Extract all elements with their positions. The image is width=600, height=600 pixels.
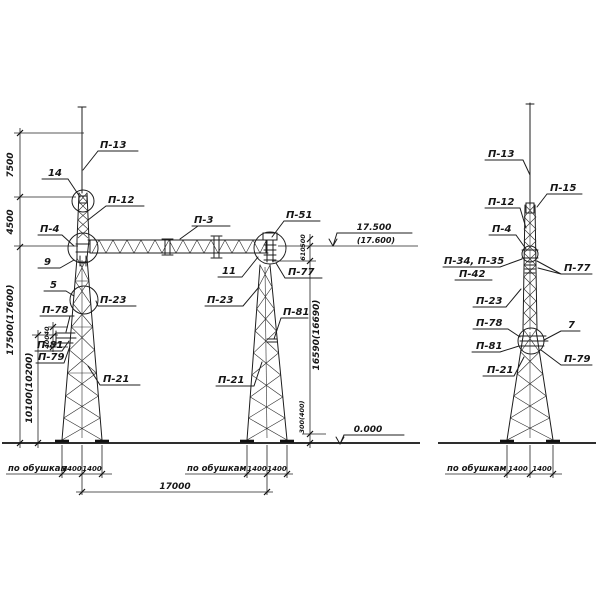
label-9-front: 9 [44,257,51,268]
dim-base-side-b: 1400 [532,465,552,473]
note-po-obushkam-side: по обушкам [447,463,507,474]
label-p21-right: П-21 [218,375,244,386]
label-p13-side: П-13 [488,149,514,160]
label-p77-front: П-77 [288,267,314,278]
label-p34-p35-side: П-34, П-35 [444,256,504,267]
label-p4-front: П-4 [40,224,60,235]
label-p78-front: П-78 [42,305,68,316]
dim-base1-a: 1400 [62,465,82,473]
elevation-17600-alt: (17.600) [357,236,395,245]
note-po-obushkam-1: по обушкам [8,463,68,474]
dim-40: 40 [43,326,51,336]
front-structure [55,107,294,441]
label-p23-left: П-23 [100,295,126,306]
label-p42-side: П-42 [459,269,485,280]
label-p13-front: П-13 [100,140,126,151]
label-p21-left: П-21 [103,374,129,385]
dim-400: 400 [43,335,51,349]
dim-500: 500 [299,234,307,248]
label-14-front: 14 [48,168,62,179]
label-p12-front: П-12 [108,195,134,206]
dim-16590: 16590(16690) [312,300,322,371]
side-texts: П-13 П-15 П-12 П-4 П-34, П-35 П-42 П-77 … [444,149,590,474]
front-leaders [35,151,322,386]
dim-17500: 17500(17600) [6,285,16,356]
dim-610: 610 [299,247,307,261]
label-p79-side: П-79 [564,354,590,365]
portal-tower-drawing: П-13 14 П-12 П-4 9 5 П-23 П-78 П-81 П-79… [0,0,600,600]
front-view: П-13 14 П-12 П-4 9 5 П-23 П-78 П-81 П-79… [2,107,420,495]
label-p77-side: П-77 [564,263,590,274]
dim-base-side-a: 1400 [508,465,528,473]
label-p3: П-3 [194,215,214,226]
label-p12-side: П-12 [488,197,514,208]
label-p21-side: П-21 [487,365,513,376]
side-view: П-13 П-15 П-12 П-4 П-34, П-35 П-42 П-77 … [438,103,596,478]
label-p23-side: П-23 [476,296,502,307]
dim-base2-b: 1400 [267,465,287,473]
label-p81-right: П-81 [283,307,309,318]
dim-base2-a: 1400 [247,465,267,473]
note-po-obushkam-2: по обушкам [187,463,247,474]
label-p15-side: П-15 [550,183,576,194]
dim-base1-b: 1400 [82,465,102,473]
label-p79-front: П-79 [38,352,64,363]
dim-300: 300(400) [298,400,306,433]
label-5-front: 5 [50,280,57,291]
label-7-side: 7 [568,320,575,331]
dim-17000: 17000 [159,482,190,492]
dim-10100: 10100(10200) [25,353,35,424]
label-p4-side: П-4 [492,224,512,235]
dim-4500: 4500 [6,209,16,235]
label-p81-side: П-81 [476,341,502,352]
label-11: 11 [222,266,236,277]
label-p23-right: П-23 [207,295,233,306]
label-p78-side: П-78 [476,318,502,329]
dim-7500: 7500 [6,152,16,177]
elevation-0000: 0.000 [354,425,382,435]
elevation-17500: 17.500 [357,223,392,233]
label-p51: П-51 [286,210,312,221]
